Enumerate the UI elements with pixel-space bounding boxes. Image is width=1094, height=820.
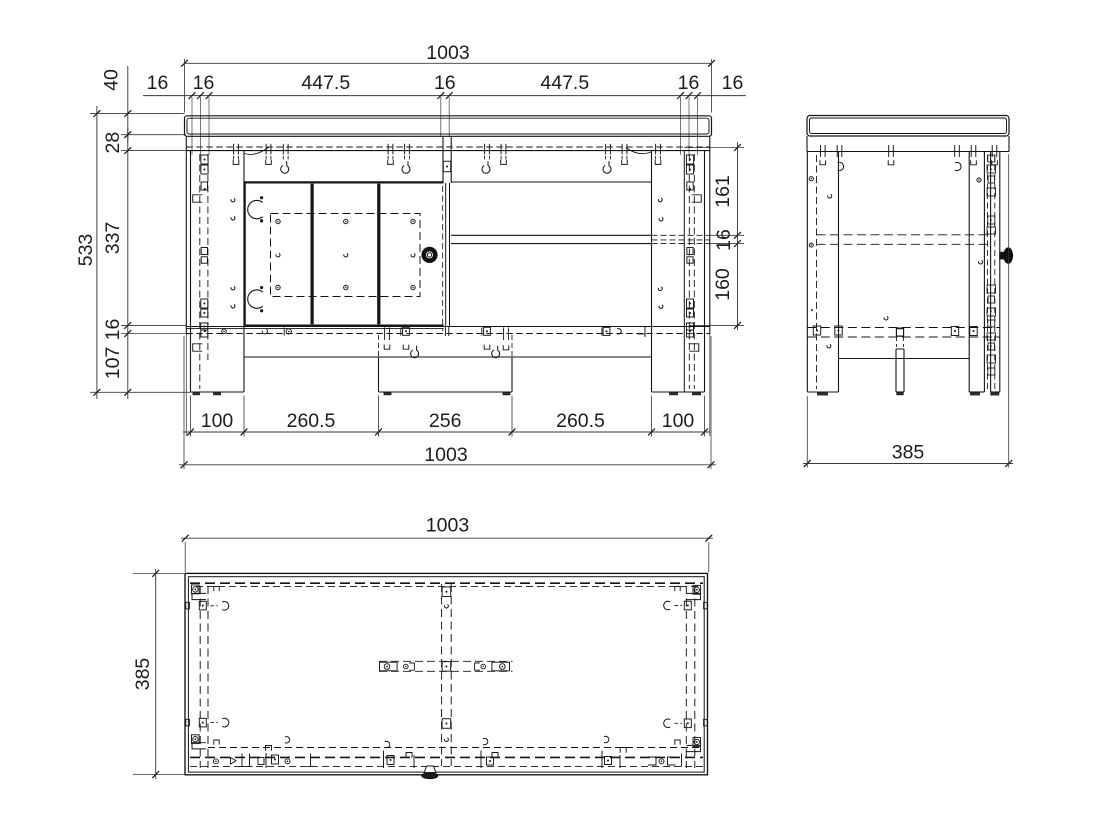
svg-text:16: 16 xyxy=(193,72,215,94)
svg-text:337: 337 xyxy=(102,222,124,255)
svg-text:447.5: 447.5 xyxy=(540,72,589,94)
svg-text:16: 16 xyxy=(678,72,700,94)
svg-text:533: 533 xyxy=(75,234,97,267)
svg-text:16: 16 xyxy=(713,229,735,251)
svg-text:16: 16 xyxy=(434,72,456,94)
svg-text:16: 16 xyxy=(102,319,124,341)
svg-text:28: 28 xyxy=(102,132,124,154)
svg-text:161: 161 xyxy=(712,175,734,208)
svg-text:260.5: 260.5 xyxy=(556,410,605,432)
svg-text:447.5: 447.5 xyxy=(301,72,350,94)
svg-text:107: 107 xyxy=(102,347,124,380)
svg-text:16: 16 xyxy=(722,72,744,94)
svg-text:16: 16 xyxy=(147,72,169,94)
svg-text:1003: 1003 xyxy=(426,515,469,537)
svg-text:385: 385 xyxy=(892,442,925,464)
svg-text:260.5: 260.5 xyxy=(287,410,336,432)
svg-text:100: 100 xyxy=(662,410,695,432)
svg-text:385: 385 xyxy=(132,658,154,691)
svg-text:160: 160 xyxy=(712,268,734,301)
svg-text:256: 256 xyxy=(429,410,462,432)
svg-text:1003: 1003 xyxy=(426,42,469,64)
svg-text:100: 100 xyxy=(201,410,234,432)
svg-text:1003: 1003 xyxy=(424,444,467,466)
svg-text:40: 40 xyxy=(101,69,123,91)
